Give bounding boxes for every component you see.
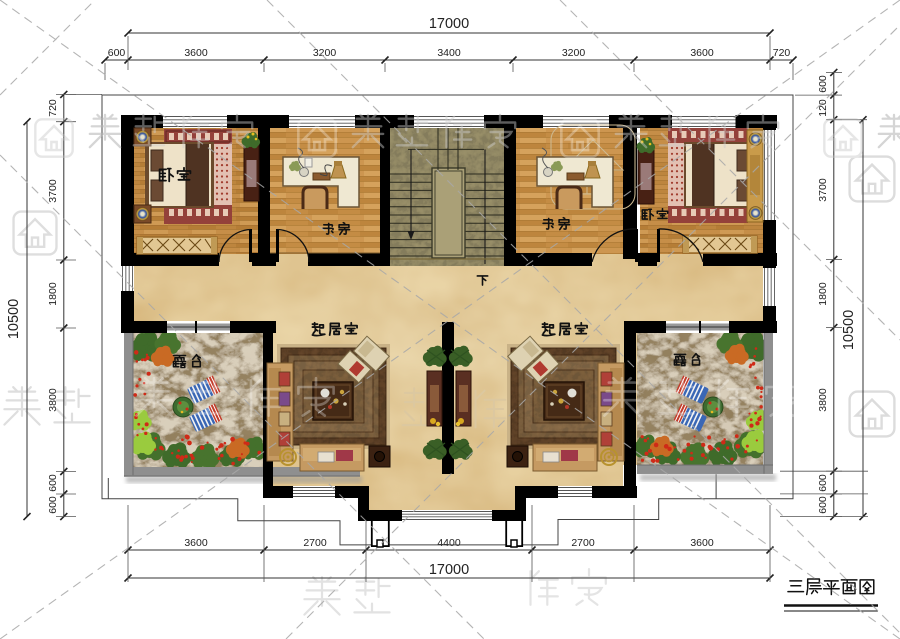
svg-text:600: 600 <box>817 75 829 93</box>
svg-text:1800: 1800 <box>817 282 829 306</box>
svg-text:3800: 3800 <box>817 388 829 412</box>
svg-text:3600: 3600 <box>184 537 208 549</box>
svg-text:17000: 17000 <box>429 16 469 32</box>
svg-text:3400: 3400 <box>437 47 461 59</box>
svg-text:3600: 3600 <box>690 47 714 59</box>
svg-text:17000: 17000 <box>429 562 469 578</box>
svg-text:3600: 3600 <box>184 47 208 59</box>
svg-text:600: 600 <box>817 496 829 514</box>
svg-text:1800: 1800 <box>47 282 59 306</box>
svg-text:600: 600 <box>47 474 59 492</box>
svg-text:120: 120 <box>817 99 829 117</box>
svg-text:3700: 3700 <box>817 178 829 202</box>
svg-text:3600: 3600 <box>690 537 714 549</box>
svg-text:2700: 2700 <box>571 537 595 549</box>
svg-text:600: 600 <box>108 47 126 59</box>
svg-text:2700: 2700 <box>303 537 327 549</box>
svg-text:720: 720 <box>773 47 791 59</box>
svg-text:3200: 3200 <box>562 47 586 59</box>
svg-text:720: 720 <box>47 99 59 117</box>
svg-text:3800: 3800 <box>47 388 59 412</box>
svg-text:10500: 10500 <box>6 299 22 339</box>
svg-text:10500: 10500 <box>841 310 857 350</box>
svg-text:600: 600 <box>817 474 829 492</box>
svg-text:3700: 3700 <box>47 179 59 203</box>
svg-text:600: 600 <box>47 496 59 514</box>
svg-text:4400: 4400 <box>437 537 461 549</box>
